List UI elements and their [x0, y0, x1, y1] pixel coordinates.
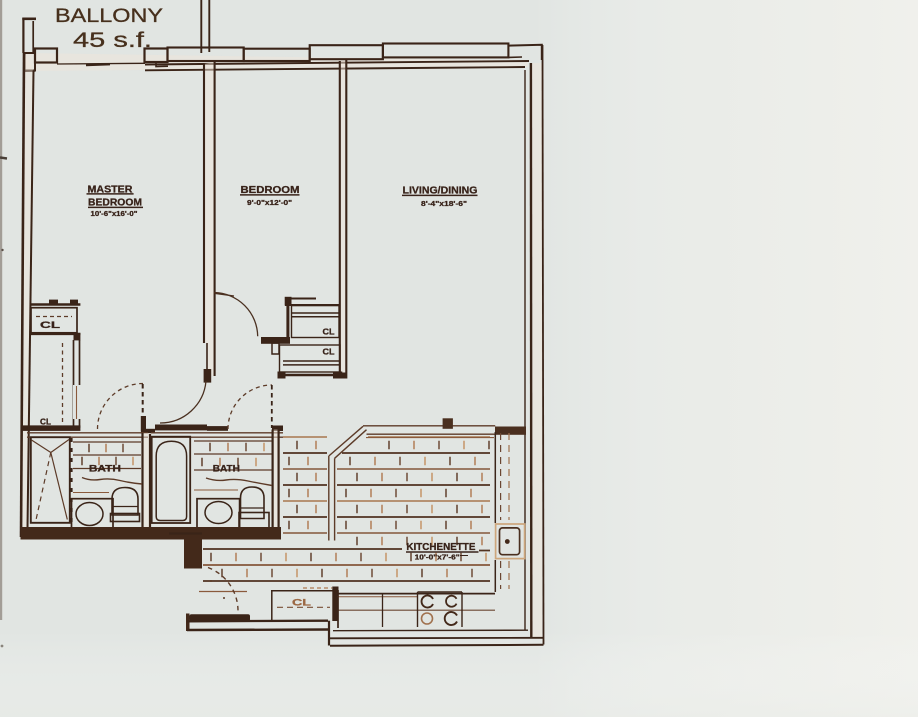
- svg-text:CL: CL: [40, 320, 60, 331]
- svg-text:CL: CL: [292, 598, 311, 609]
- svg-text:CL: CL: [40, 417, 51, 427]
- svg-text:BATH: BATH: [89, 464, 121, 474]
- svg-text:10'-0"x7'-6": 10'-0"x7'-6": [415, 555, 460, 562]
- svg-text:8'-4"x18'-6": 8'-4"x18'-6": [421, 199, 467, 208]
- svg-text:CL: CL: [323, 347, 335, 357]
- svg-text:BATH: BATH: [213, 464, 240, 474]
- svg-text:45 s.f.: 45 s.f.: [73, 29, 152, 52]
- svg-text:BALLONY: BALLONY: [55, 6, 163, 27]
- svg-text:CL: CL: [323, 327, 335, 337]
- svg-text:9'-0"x12'-0": 9'-0"x12'-0": [247, 198, 292, 207]
- svg-text:10'-6"x16'-0": 10'-6"x16'-0": [91, 209, 138, 218]
